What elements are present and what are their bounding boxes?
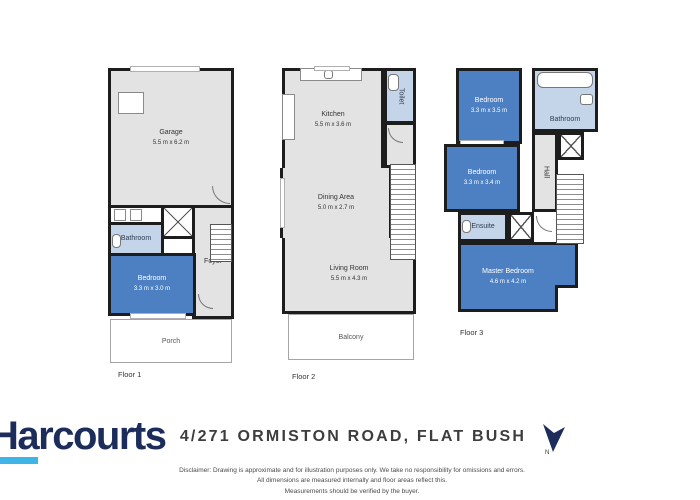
bedroom-1-room: Bedroom 3.3 m x 3.5 m <box>456 68 522 144</box>
disclaimer-line: Disclaimer: Drawing is approximate and f… <box>157 466 547 476</box>
floor-3-plan: Bedroom 3.3 m x 3.5 m Bathroom Hall Bedr… <box>444 66 602 366</box>
room-name: Bedroom <box>468 169 496 178</box>
closet-x <box>558 132 584 160</box>
disclaimer-text: Disclaimer: Drawing is approximate and f… <box>157 466 547 497</box>
north-arrow-icon: N <box>541 423 571 459</box>
master-bedroom-extension <box>555 242 578 288</box>
room-dims: 5.5 m x 4.3 m <box>331 276 367 284</box>
room-name: Bathroom <box>121 235 151 244</box>
room-name: Living Room <box>330 265 369 274</box>
room-name: Garage <box>159 129 182 138</box>
bathtub-fixture <box>537 72 593 88</box>
kitchen-room: Kitchen 5.5 m x 3.6 m <box>282 68 384 170</box>
room-name: Balcony <box>339 334 364 341</box>
room-name: Hall <box>541 166 550 178</box>
disclaimer-line: All dimensions are measured internally a… <box>157 476 547 486</box>
closet-x <box>508 212 534 242</box>
harcourts-logo: Harcourts <box>0 414 165 459</box>
hall-area: Hall <box>532 132 558 212</box>
brand-text: Harcourts <box>0 414 165 458</box>
room-name: Bedroom <box>475 97 503 106</box>
floor-2-plan: Kitchen 5.5 m x 3.6 m Toilet Dining Area… <box>280 66 424 388</box>
floor-3-label: Floor 3 <box>460 328 483 337</box>
room-name: Kitchen <box>321 111 344 120</box>
stove-fixture <box>324 70 333 79</box>
dining-bay-window <box>280 178 285 228</box>
kitchen-counter-left <box>282 94 295 140</box>
stairs <box>210 224 232 262</box>
bedroom-room: Bedroom 3.3 m x 3.0 m <box>108 253 196 316</box>
dining-room: Dining Area 5.0 m x 2.7 m <box>280 168 392 238</box>
laundry-appliance <box>114 209 126 221</box>
foyer-room: Foyer <box>192 205 234 319</box>
sink-fixture <box>580 94 593 105</box>
door-arc <box>536 216 552 232</box>
logo-underline <box>0 457 38 464</box>
room-dims: 3.3 m x 3.4 m <box>464 180 500 188</box>
room-dims: 4.6 m x 4.2 m <box>490 279 526 287</box>
master-bedroom-room: Master Bedroom 4.6 m x 4.2 m <box>458 242 558 312</box>
room-name: Ensuite <box>471 223 494 232</box>
room-dims: 5.0 m x 2.7 m <box>318 205 354 213</box>
toilet-fixture <box>462 220 471 233</box>
room-name: Porch <box>162 338 180 345</box>
room-dims: 3.3 m x 3.5 m <box>471 108 507 116</box>
room-dims: 3.3 m x 3.0 m <box>134 286 170 294</box>
toilet-fixture <box>388 74 399 91</box>
property-address: 4/271 ORMISTON ROAD, FLAT BUSH <box>178 428 528 446</box>
room-name: Bathroom <box>550 116 580 125</box>
north-label: N <box>545 450 549 456</box>
garage-storage <box>118 92 144 114</box>
laundry-sink <box>130 209 142 221</box>
closet-x <box>161 205 195 239</box>
bedroom-2-room: Bedroom 3.3 m x 3.4 m <box>444 144 520 212</box>
floor-2-label: Floor 2 <box>292 372 315 381</box>
floor-1-plan: Garage 5.5 m x 6.2 m Foyer Bathroom Bedr… <box>106 66 240 382</box>
kitchen-window <box>314 66 350 71</box>
toilet-fixture <box>112 234 121 248</box>
stairs <box>390 164 416 260</box>
room-name: Dining Area <box>318 194 354 203</box>
north-arrow-glyph <box>541 423 567 453</box>
room-dims: 5.5 m x 6.2 m <box>153 140 189 148</box>
porch-area: Porch <box>110 319 232 363</box>
room-name: Master Bedroom <box>482 268 534 277</box>
disclaimer-line: Measurements should be verified by the b… <box>157 487 547 497</box>
stairs <box>556 174 584 244</box>
balcony-area: Balcony <box>288 314 414 360</box>
room-name: Bedroom <box>138 275 166 284</box>
floorplan-sheet: Garage 5.5 m x 6.2 m Foyer Bathroom Bedr… <box>0 0 700 500</box>
garage-door <box>130 66 200 72</box>
floor-1-label: Floor 1 <box>118 370 141 379</box>
room-dims: 5.5 m x 3.6 m <box>315 122 351 130</box>
